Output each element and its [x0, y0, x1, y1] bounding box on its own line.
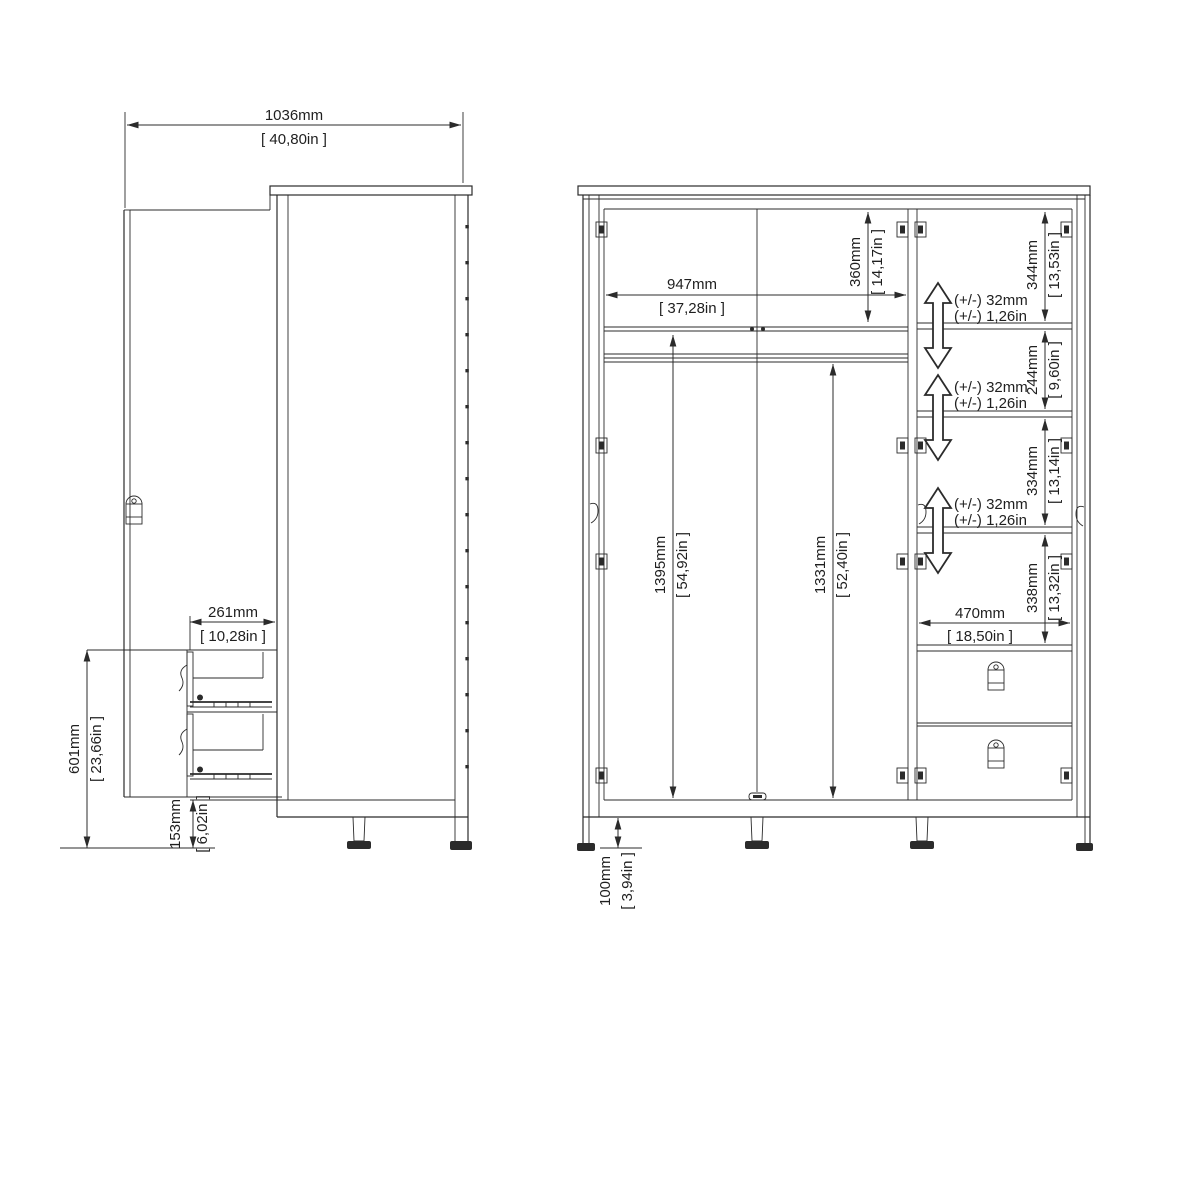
dim-label-top-compartment-mm: 360mm [847, 237, 864, 287]
adjust-label-mm: (+/-) 32mm [954, 496, 1028, 513]
side-back-foot [450, 841, 472, 850]
dim-label-compartment-width-inch: [ 18,50in ] [947, 628, 1013, 645]
dim-label-drawer-unit-height-inch: [ 23,66in ] [88, 716, 105, 782]
dim-label-compartment-4-inch: [ 13,32in ] [1046, 555, 1063, 621]
dim-label-interior-width-mm: 947mm [667, 276, 717, 293]
adjust-label-inch: (+/-) 1,26in [954, 308, 1027, 325]
dim-label-foot-height-inch: [ 3,94in ] [619, 852, 636, 910]
drawer-roller-icon [197, 695, 203, 701]
dim-label-right-hanging-inch: [ 52,40in ] [834, 532, 851, 598]
left-door-foot [577, 843, 595, 851]
drawer-roller-icon [197, 767, 203, 773]
dim-label-left-hanging-inch: [ 54,92in ] [674, 532, 691, 598]
dim-label-right-hanging-mm: 1331mm [812, 536, 829, 594]
adjust-label-mm: (+/-) 32mm [954, 379, 1028, 396]
dim-label-compartment-width-mm: 470mm [955, 605, 1005, 622]
dim-label-plinth-inch: [ 6,02in ] [194, 795, 211, 853]
dim-label-compartment-2-inch: [ 9,60in ] [1046, 341, 1063, 399]
dim-label-plinth-mm: 153mm [167, 799, 184, 849]
dim-label-compartment-1-mm: 344mm [1024, 240, 1041, 290]
dim-label-compartment-1-inch: [ 13,53in ] [1046, 232, 1063, 298]
dim-label-top-compartment-inch: [ 14,17in ] [869, 229, 886, 295]
dim-label-drawer-unit-height-mm: 601mm [66, 724, 83, 774]
dim-label-drawer-extension-mm: 261mm [208, 604, 258, 621]
dim-label-total-depth-inch: [ 40,80in ] [261, 131, 327, 148]
adjust-label-mm: (+/-) 32mm [954, 292, 1028, 309]
dim-label-left-hanging-mm: 1395mm [652, 536, 669, 594]
wardrobe-dimension-drawing: 1036mm [ 40,80in ] [0, 0, 1200, 1200]
dim-label-foot-height-mm: 100mm [597, 856, 614, 906]
adjust-label-inch: (+/-) 1,26in [954, 512, 1027, 529]
dim-label-compartment-2-mm: 244mm [1024, 345, 1041, 395]
dim-label-compartment-4-mm: 338mm [1024, 563, 1041, 613]
dim-label-drawer-extension-inch: [ 10,28in ] [200, 628, 266, 645]
dim-label-compartment-3-inch: [ 13,14in ] [1046, 438, 1063, 504]
dim-label-compartment-3-mm: 334mm [1024, 446, 1041, 496]
right-door-foot [1076, 843, 1093, 851]
canvas-background [0, 0, 1200, 1200]
adjust-label-inch: (+/-) 1,26in [954, 395, 1027, 412]
dim-label-interior-width-inch: [ 37,28in ] [659, 300, 725, 317]
dim-label-total-depth-mm: 1036mm [265, 107, 323, 124]
